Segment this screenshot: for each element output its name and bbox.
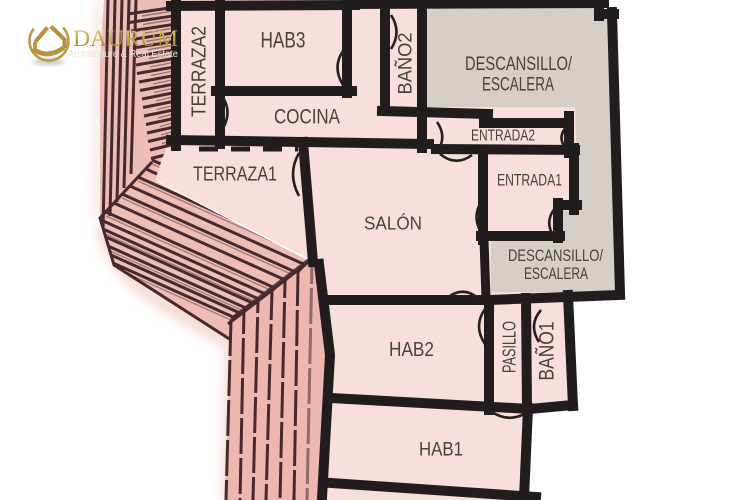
svg-text:BAÑO2: BAÑO2 [395, 33, 417, 95]
svg-text:PASILLO: PASILLO [499, 321, 520, 373]
svg-text:ESCALERA: ESCALERA [524, 265, 588, 283]
svg-text:ESCALERA: ESCALERA [482, 74, 554, 96]
svg-text:COCINA: COCINA [274, 105, 341, 129]
svg-text:SALÓN: SALÓN [364, 213, 422, 234]
svg-text:BAÑO1: BAÑO1 [535, 322, 559, 381]
svg-text:HAB1: HAB1 [419, 439, 463, 461]
svg-text:ENTRADA2: ENTRADA2 [471, 128, 535, 145]
svg-text:Architecture & Real Estate: Architecture & Real Estate [68, 48, 178, 60]
svg-text:TERRAZA1: TERRAZA1 [193, 163, 277, 186]
svg-text:ENTRADA1: ENTRADA1 [497, 172, 562, 190]
svg-text:DESCANSILLO/: DESCANSILLO/ [465, 53, 572, 75]
svg-text:TERRAZA2: TERRAZA2 [188, 26, 211, 117]
svg-text:HAB2: HAB2 [389, 339, 434, 361]
svg-text:DESCANSILLO/: DESCANSILLO/ [508, 246, 603, 265]
svg-text:HAB3: HAB3 [261, 28, 306, 53]
